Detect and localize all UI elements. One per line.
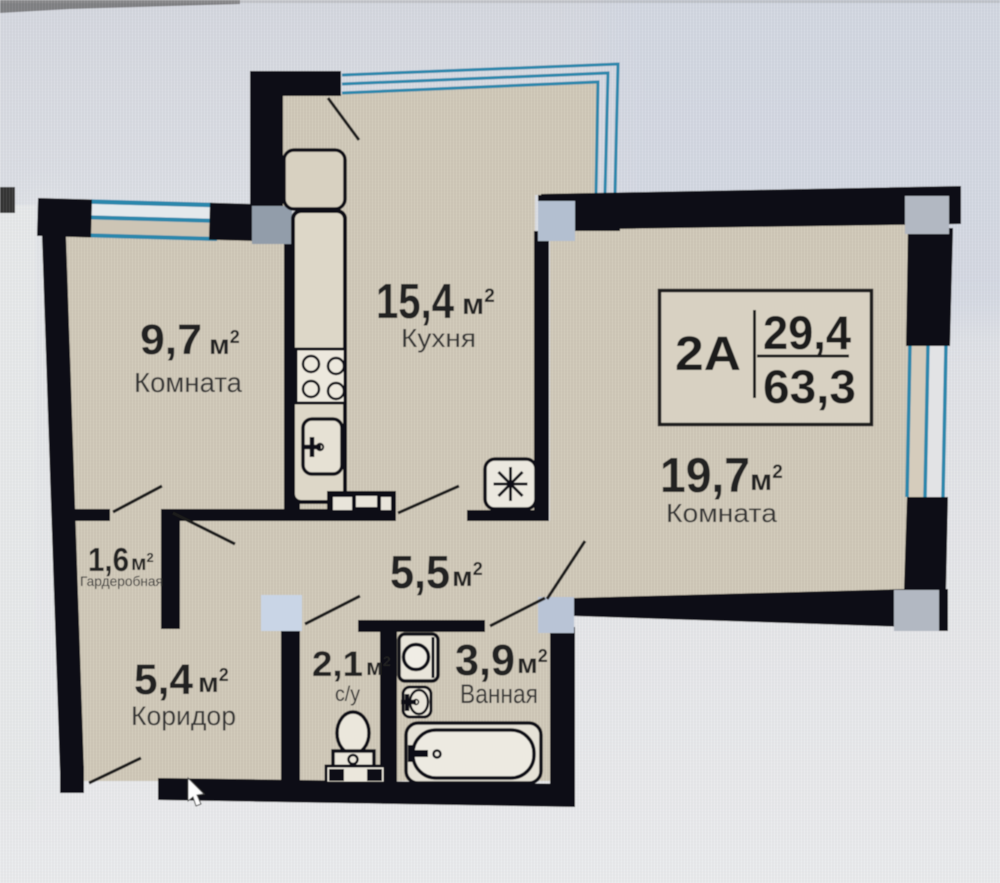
svg-text:19,7: 19,7: [660, 449, 750, 503]
svg-text:3,9: 3,9: [455, 636, 515, 685]
svg-text:2,1: 2,1: [312, 645, 363, 684]
svg-text:Ванная: Ванная: [460, 679, 538, 709]
svg-text:5,4: 5,4: [134, 656, 193, 704]
svg-text:с/у: с/у: [335, 683, 360, 706]
svg-text:Коридор: Коридор: [131, 701, 236, 731]
svg-text:5,5: 5,5: [390, 546, 450, 598]
svg-text:63,3: 63,3: [763, 360, 856, 413]
svg-text:29,4: 29,4: [763, 306, 851, 359]
svg-text:9,7: 9,7: [140, 316, 202, 364]
svg-text:15,4: 15,4: [376, 275, 454, 329]
svg-text:Кухня: Кухня: [401, 323, 476, 353]
svg-text:Гардеробная: Гардеробная: [80, 573, 163, 589]
svg-text:Комната: Комната: [134, 367, 242, 398]
svg-text:2А: 2А: [675, 328, 741, 381]
svg-text:Комната: Комната: [666, 498, 778, 528]
